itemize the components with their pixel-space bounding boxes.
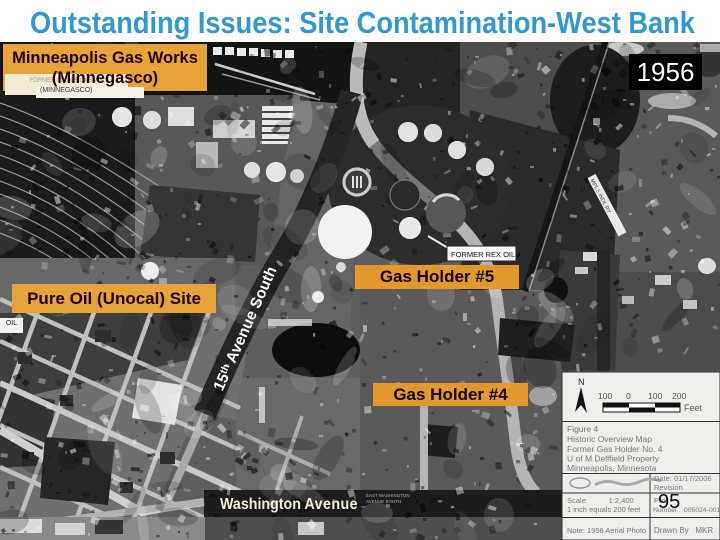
svg-text:Figure 4: Figure 4 [567,424,598,434]
svg-text:Drawn By MKR: Drawn By MKR [654,526,713,535]
svg-text:N: N [578,377,585,387]
svg-text:Feet: Feet [684,403,703,413]
svg-text:FORMER REX OIL: FORMER REX OIL [451,250,515,259]
svg-text:100: 100 [598,391,612,401]
svg-text:Scale: 1:2,400: Scale: 1:2,400 [567,496,634,505]
svg-text:Note: 1956 Aerial Photo: Note: 1956 Aerial Photo [567,526,646,535]
svg-text:Minneapolis, Minnesota: Minneapolis, Minnesota [567,463,657,473]
svg-text:Date: 01/17/2006: Date: 01/17/2006 [654,474,712,483]
svg-text:005024-001: 005024-001 [684,507,720,514]
svg-text:200: 200 [672,391,686,401]
svg-text:Former Gas Holder No. 4: Former Gas Holder No. 4 [567,444,663,454]
svg-text:Historic Overview Map: Historic Overview Map [567,434,652,444]
svg-text:0: 0 [626,391,631,401]
svg-text:100: 100 [648,391,662,401]
svg-text:1 inch equals 200 feet: 1 inch equals 200 feet [567,505,641,514]
svg-text:U of M Dellfield Property: U of M Dellfield Property [567,454,660,464]
